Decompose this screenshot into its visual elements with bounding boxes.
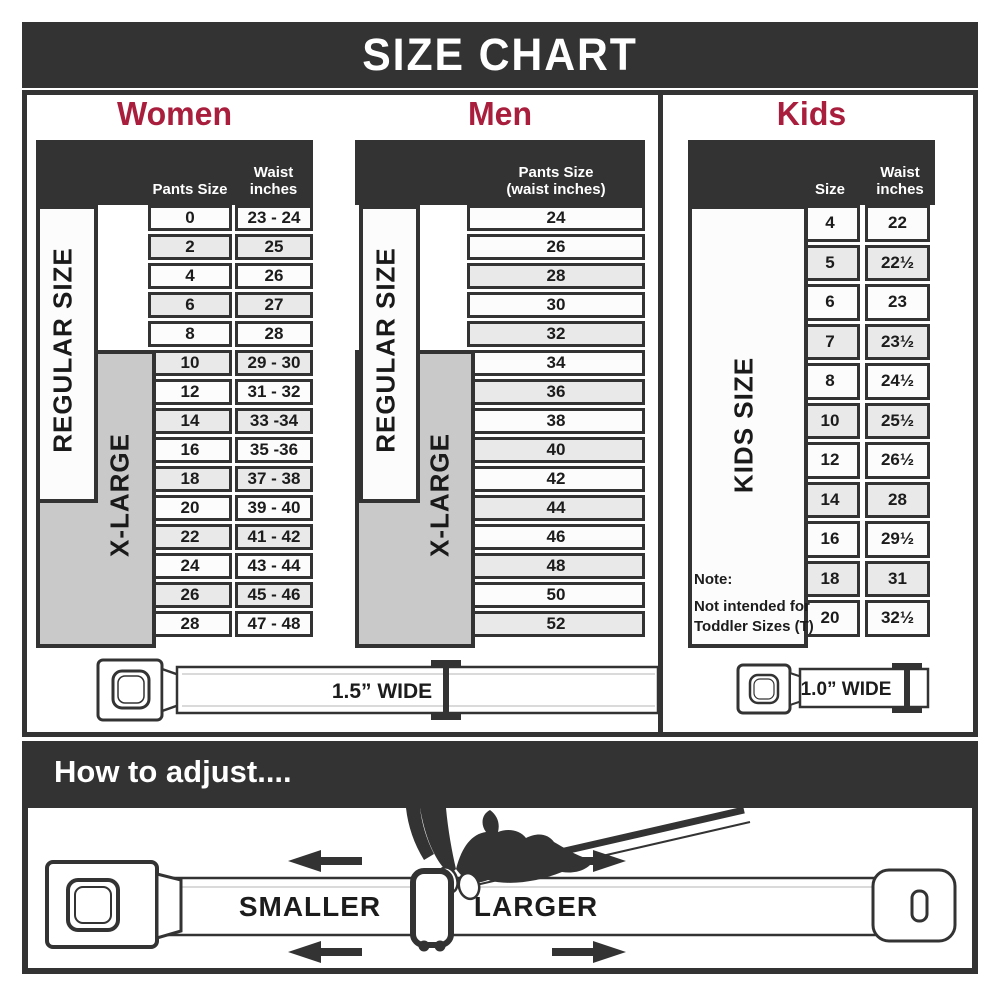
adults-section: Women Men Pants Size Waist inches REGULA… bbox=[27, 95, 658, 732]
kids-heading: Kids bbox=[692, 95, 932, 133]
cell: 26½ bbox=[865, 442, 930, 479]
adjust-belt-diagram: SMALLER LARGER bbox=[28, 808, 972, 968]
cell: 6 bbox=[800, 284, 860, 321]
kids-belt-width-label: 1.0” WIDE bbox=[801, 679, 892, 700]
cell: 29 - 30 bbox=[235, 350, 313, 376]
cell: 22½ bbox=[865, 245, 930, 282]
cell: 28 bbox=[865, 482, 930, 519]
cell: 28 bbox=[148, 611, 232, 637]
cell: 16 bbox=[148, 437, 232, 463]
size-tables-panel: Women Men Pants Size Waist inches REGULA… bbox=[22, 90, 978, 737]
men-heading: Men bbox=[359, 95, 640, 133]
cell: 23 bbox=[865, 284, 930, 321]
larger-label: LARGER bbox=[474, 891, 598, 922]
men-col-pants-size: Pants Size (waist inches) bbox=[467, 140, 645, 205]
women-table-header: Pants Size Waist inches bbox=[36, 140, 313, 205]
cell: 28 bbox=[467, 263, 645, 289]
cell: 12 bbox=[800, 442, 860, 479]
arrow-left-icon bbox=[288, 941, 362, 963]
cell: 24½ bbox=[865, 363, 930, 400]
cell: 48 bbox=[467, 553, 645, 579]
women-xlarge-label: X-LARGE bbox=[105, 433, 136, 557]
cell: 14 bbox=[148, 408, 232, 434]
cell: 25 bbox=[235, 234, 313, 260]
cell: 10 bbox=[800, 403, 860, 440]
kids-col-size: Size bbox=[800, 140, 860, 205]
kids-col-waist: Waist inches bbox=[865, 140, 935, 205]
cell: 8 bbox=[148, 321, 232, 347]
cell: 18 bbox=[148, 466, 232, 492]
men-table-header: Pants Size (waist inches) bbox=[355, 140, 645, 205]
how-to-adjust-heading: How to adjust.... bbox=[54, 754, 292, 790]
cell: 31 bbox=[865, 561, 930, 598]
kids-belt-diagram: 1.0” WIDE bbox=[728, 655, 938, 730]
smaller-label: SMALLER bbox=[239, 891, 381, 922]
men-size-table: Pants Size (waist inches) REGULAR SIZE X… bbox=[355, 140, 645, 640]
size-chart-page: SIZE CHART Women Men Pants Size Waist in… bbox=[0, 0, 1000, 1000]
men-col-header-line2: (waist inches) bbox=[506, 181, 605, 198]
cell: 5 bbox=[800, 245, 860, 282]
seatbelt-buckle-icon bbox=[738, 665, 805, 713]
cell: 7 bbox=[800, 324, 860, 361]
kids-note: Note: Not intended for Toddler Sizes (T) bbox=[694, 570, 814, 637]
how-to-adjust-band: How to adjust.... bbox=[22, 741, 978, 802]
cell: 26 bbox=[467, 234, 645, 260]
cell: 2 bbox=[148, 234, 232, 260]
cell: 43 - 44 bbox=[235, 553, 313, 579]
seatbelt-buckle-icon bbox=[98, 660, 183, 720]
cell: 41 - 42 bbox=[235, 524, 313, 550]
cell: 24 bbox=[467, 205, 645, 231]
men-xlarge-label: X-LARGE bbox=[425, 433, 456, 557]
cell: 50 bbox=[467, 582, 645, 608]
kids-note-title: Note: bbox=[694, 570, 814, 590]
cell: 23½ bbox=[865, 324, 930, 361]
cell: 28 bbox=[235, 321, 313, 347]
cell: 22 bbox=[148, 524, 232, 550]
cell: 38 bbox=[467, 408, 645, 434]
cell: 31 - 32 bbox=[235, 379, 313, 405]
kids-rows: 422522½623723½824½1025½1226½14281629½183… bbox=[800, 205, 930, 637]
cell: 16 bbox=[800, 521, 860, 558]
cell: 29½ bbox=[865, 521, 930, 558]
men-rows: 242628303234363840424446485052 bbox=[467, 205, 645, 637]
adult-belt-diagram: 1.5” WIDE bbox=[87, 655, 658, 730]
cell: 4 bbox=[148, 263, 232, 289]
cell: 45 - 46 bbox=[235, 582, 313, 608]
cell: 14 bbox=[800, 482, 860, 519]
cell: 22 bbox=[865, 205, 930, 242]
kids-size-table: Size Waist inches KIDS SIZE Note: Not in… bbox=[688, 140, 935, 640]
title-bar: SIZE CHART bbox=[22, 22, 978, 88]
cell: 37 - 38 bbox=[235, 466, 313, 492]
page-title: SIZE CHART bbox=[362, 29, 638, 81]
women-rows: 023 - 242254266278281029 - 301231 - 3214… bbox=[148, 205, 313, 637]
kids-note-line2: Toddler Sizes (T) bbox=[694, 617, 814, 637]
adult-belt-width-label: 1.5” WIDE bbox=[332, 680, 432, 703]
belt-end-tip bbox=[873, 870, 955, 941]
men-col-header-line1: Pants Size bbox=[518, 164, 593, 181]
women-size-table: Pants Size Waist inches REGULAR SIZE X-L… bbox=[36, 140, 313, 640]
cell: 6 bbox=[148, 292, 232, 318]
cell: 32 bbox=[467, 321, 645, 347]
cell: 24 bbox=[148, 553, 232, 579]
kids-section: Kids Size Waist inches KIDS SIZE Note: N… bbox=[663, 95, 973, 732]
cell: 33 -34 bbox=[235, 408, 313, 434]
cell: 30 bbox=[467, 292, 645, 318]
cell: 0 bbox=[148, 205, 232, 231]
cell: 26 bbox=[235, 263, 313, 289]
cell: 23 - 24 bbox=[235, 205, 313, 231]
cell: 40 bbox=[467, 437, 645, 463]
arrow-right-icon bbox=[552, 941, 626, 963]
cell: 32½ bbox=[865, 600, 930, 637]
belt-adjuster-slider bbox=[413, 871, 451, 952]
cell: 20 bbox=[148, 495, 232, 521]
kids-table-header: Size Waist inches bbox=[688, 140, 935, 205]
adjust-illustration-box: SMALLER LARGER bbox=[22, 802, 978, 974]
kids-size-label: KIDS SIZE bbox=[729, 357, 760, 493]
cell: 39 - 40 bbox=[235, 495, 313, 521]
cell: 4 bbox=[800, 205, 860, 242]
cell: 34 bbox=[467, 350, 645, 376]
cell: 47 - 48 bbox=[235, 611, 313, 637]
arrow-left-icon bbox=[288, 850, 362, 872]
kids-note-line1: Not intended for bbox=[694, 597, 814, 617]
cell: 27 bbox=[235, 292, 313, 318]
cell: 25½ bbox=[865, 403, 930, 440]
cell: 44 bbox=[467, 495, 645, 521]
cell: 36 bbox=[467, 379, 645, 405]
cell: 12 bbox=[148, 379, 232, 405]
men-regular-label: REGULAR SIZE bbox=[371, 247, 402, 453]
seatbelt-buckle-icon bbox=[47, 862, 181, 947]
women-col-pants-size: Pants Size bbox=[148, 140, 232, 205]
cell: 42 bbox=[467, 466, 645, 492]
cell: 35 -36 bbox=[235, 437, 313, 463]
women-regular-label: REGULAR SIZE bbox=[48, 247, 79, 453]
women-col-waist: Waist inches bbox=[234, 140, 313, 205]
cell: 10 bbox=[148, 350, 232, 376]
cell: 8 bbox=[800, 363, 860, 400]
cell: 52 bbox=[467, 611, 645, 637]
cell: 26 bbox=[148, 582, 232, 608]
women-heading: Women bbox=[40, 95, 309, 133]
cell: 46 bbox=[467, 524, 645, 550]
